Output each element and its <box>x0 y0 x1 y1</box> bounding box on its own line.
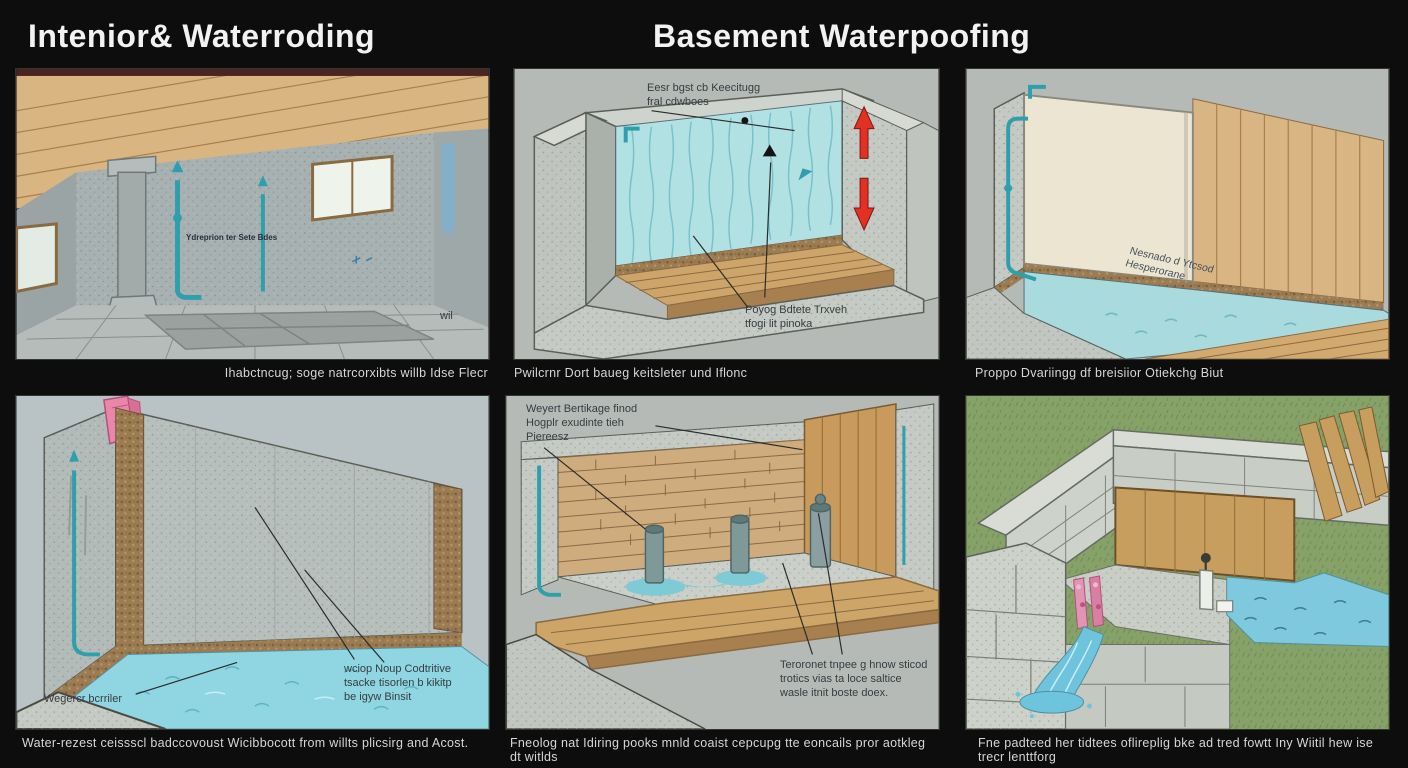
panel-3-illustration <box>966 69 1389 359</box>
title-right: Basement Waterpoofing <box>653 18 1030 55</box>
caption-panel-2: Pwilcrnr Dort baueg keitsleter und Iflon… <box>514 366 940 380</box>
panel-cutaway-wall: Eesr bgst cb Keecitugg fral cdwboes Poyo… <box>513 68 940 360</box>
panel-sump-pumps: Weyert Bertikage finod Hogplr exudinte t… <box>505 395 940 730</box>
window-left <box>17 224 57 292</box>
label-bottom: Teroronet tnpee g hnow sticod trotics vi… <box>780 658 927 700</box>
caption-panel-4: Water-rezest ceissscl badccovoust Wicibb… <box>22 736 490 750</box>
panel-6-illustration <box>966 396 1389 729</box>
label-wall: wil <box>440 309 453 323</box>
tile-floor <box>17 305 489 359</box>
label-top: Weyert Bertikage finod Hogplr exudinte t… <box>526 402 637 444</box>
window-right <box>313 156 392 220</box>
panel-flooded-room: Wegercr bcrriler wciop Noup Codtritive t… <box>15 395 490 730</box>
label-note: wciop Noup Codtritive tsacke tisorlen b … <box>344 662 452 704</box>
panel-corner-interior: Nesnado d Ytcsod Hesperorane <box>965 68 1390 360</box>
valve-icon <box>173 214 182 223</box>
panel-exterior-drainage <box>965 395 1390 730</box>
right-concrete <box>896 404 934 605</box>
gravel-column-right <box>434 483 462 632</box>
caption-panel-5: Fneolog nat Idiring pooks mnld coaist ce… <box>510 736 940 764</box>
infographic: Intenior& Waterroding Basement Waterpoof… <box>0 0 1408 768</box>
sump-pump-1 <box>645 525 663 583</box>
caption-panel-1: Ihabctncug; soge natrcorxibts willb Idse… <box>15 366 488 380</box>
title-left: Intenior& Waterroding <box>28 18 375 55</box>
label-pipe: Ydreprion ter Sete Bdes <box>186 233 277 243</box>
label-barrier: Wegercr bcrriler <box>44 692 122 706</box>
caption-panel-3: Proppo Dvariingg df breisiior Otiekchg B… <box>975 366 1390 380</box>
panel-2-illustration <box>514 69 939 359</box>
roof-edge <box>17 69 489 76</box>
valve-icon <box>1004 184 1012 192</box>
sump-pump-3 <box>810 494 830 567</box>
blue-panel <box>442 143 455 232</box>
panel-1-illustration <box>16 69 489 359</box>
label-top: Eesr bgst cb Keecitugg fral cdwboes <box>647 81 760 109</box>
label-mid: Poyog Bdtete Trxveh tfogi lit pinoka <box>745 303 847 331</box>
sump-pump-2 <box>731 515 749 573</box>
panel-interior-room: Ydreprion ter Sete Bdes wil <box>15 68 490 360</box>
gravel-column-left <box>116 408 144 651</box>
caption-panel-6: Fne padteed her tidtees oflireplig bke a… <box>978 736 1398 764</box>
